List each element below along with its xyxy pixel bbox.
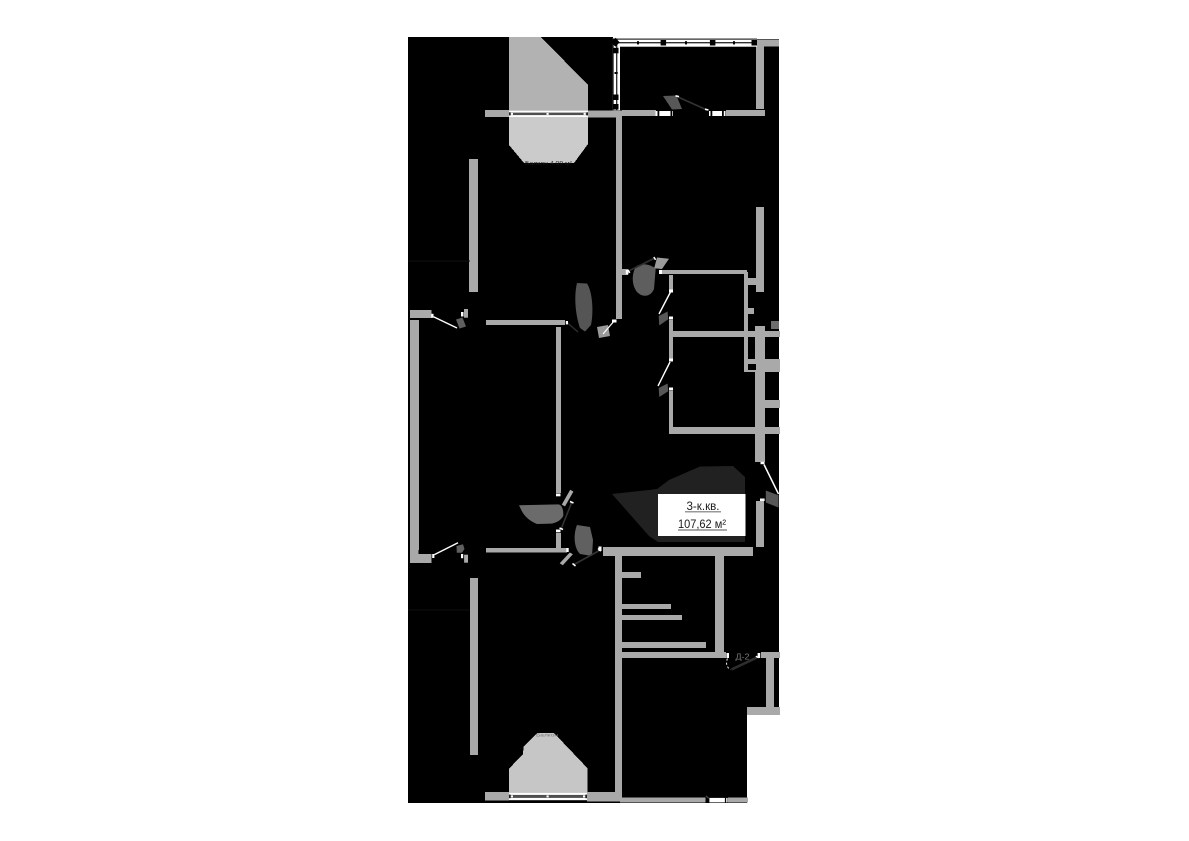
svg-text:Д-2: Д-2 — [736, 653, 751, 662]
svg-text:107,62 м²: 107,62 м² — [678, 517, 726, 531]
svg-text:Балкон 4,09 м²: Балкон 4,09 м² — [525, 161, 572, 167]
svg-text:3-к.кв.: 3-к.кв. — [687, 499, 720, 513]
svg-text:Балкон: Балкон — [536, 733, 559, 738]
